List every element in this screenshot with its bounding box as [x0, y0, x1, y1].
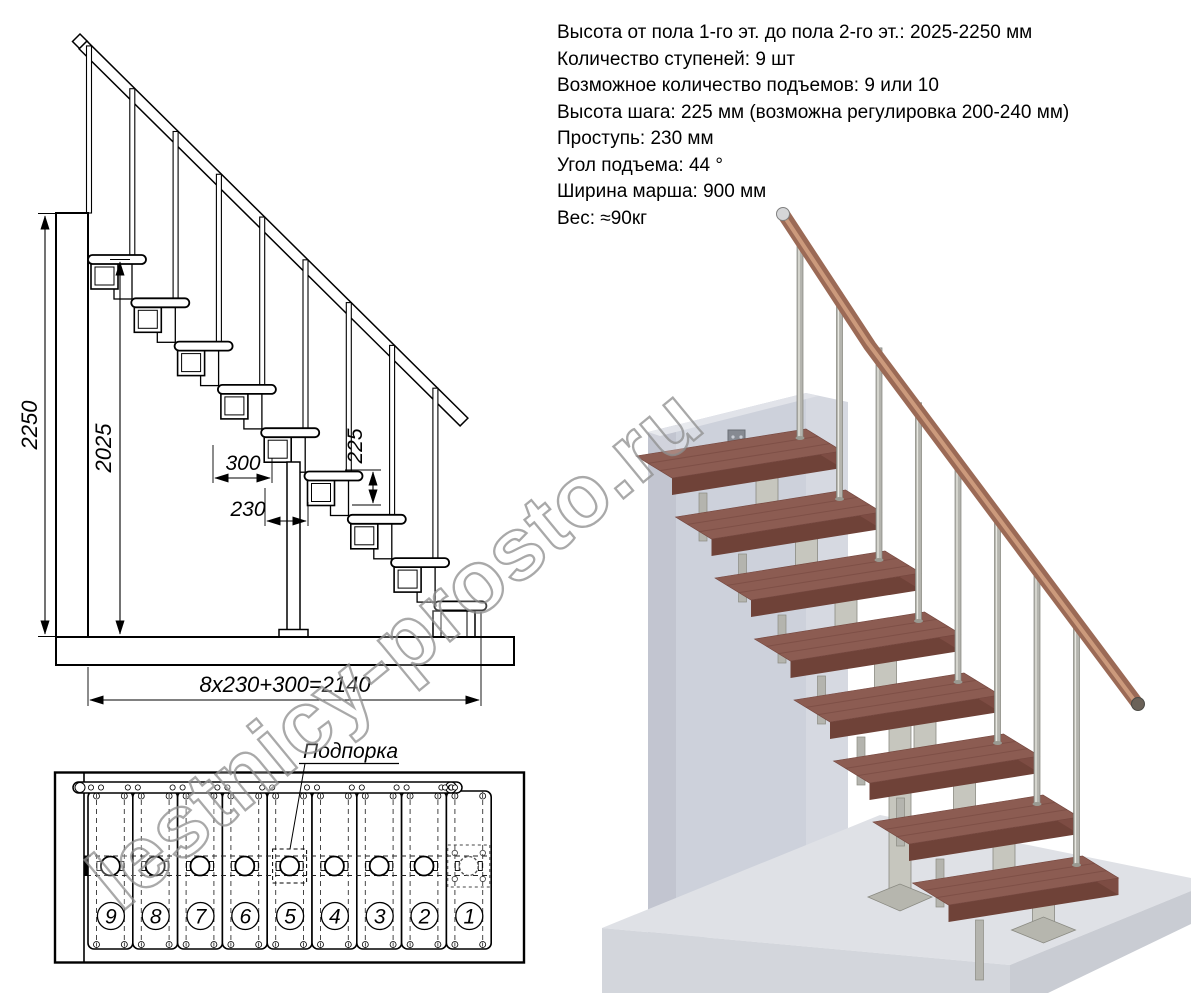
elevation-tread	[261, 428, 319, 437]
elevation-tread	[131, 298, 189, 307]
plan-rail-screw-icon	[270, 785, 275, 790]
plan-rail-screw-icon	[314, 785, 319, 790]
plan-column-circle	[459, 857, 478, 876]
elevation-baluster	[130, 89, 135, 255]
spec-line: Количество ступеней: 9 шт	[557, 47, 1177, 74]
plan-column-circle	[101, 857, 120, 876]
baluster-collar	[1072, 863, 1081, 867]
elevation-tread	[391, 558, 449, 567]
baluster-collar	[1033, 802, 1042, 806]
plan-rail-screw-icon	[225, 785, 230, 790]
plan-rail-screw-icon	[88, 785, 93, 790]
support-label: Подпорка	[303, 740, 398, 763]
handrail-end-cap	[1132, 698, 1145, 711]
spec-line: Ширина марша: 900 мм	[557, 179, 1177, 206]
plan-step-number: 3	[374, 906, 386, 929]
plan-rail-screw-icon	[170, 785, 175, 790]
baluster-collar	[914, 619, 923, 623]
elevation-baluster	[303, 260, 308, 428]
elevation-baluster	[87, 46, 92, 213]
plan-column-circle	[280, 857, 299, 876]
elevation-drawing: 2250 2025 300 230 225 8x230+300=2140	[17, 34, 514, 706]
elevation-baluster	[260, 217, 265, 385]
plan-rail-screw-icon	[349, 785, 354, 790]
dim-total-run: 8x230+300=2140	[199, 672, 371, 697]
plan-step-number: 7	[195, 906, 208, 929]
plan-rail-screw-icon	[260, 785, 265, 790]
baluster-collar	[875, 558, 884, 562]
plan-step-number: 9	[105, 906, 117, 929]
plan-rail-screw-icon	[394, 785, 399, 790]
spec-line: Проступь: 230 мм	[557, 126, 1177, 153]
plan-column-circle	[415, 857, 434, 876]
plan-connector-lug	[455, 862, 459, 871]
spec-line: Угол подъема: 44 °	[557, 153, 1177, 180]
plan-rail-screw-icon	[304, 785, 309, 790]
elevation-baluster	[216, 174, 221, 341]
plan-rail-screw-icon	[125, 785, 130, 790]
elevation-tread	[434, 601, 486, 610]
wall-shading	[648, 425, 676, 946]
dim-overlap: 300	[225, 452, 260, 475]
plan-view: 987654321 Подпорка	[55, 740, 524, 963]
elevation-wall	[56, 213, 88, 637]
plan-rail-screw-icon	[98, 785, 103, 790]
spec-block: Высота от пола 1-го эт. до пола 2-го эт.…	[557, 20, 1177, 232]
elevation-baluster	[433, 388, 438, 558]
elevation-handrail	[79, 41, 468, 426]
plan-step-number: 1	[463, 906, 475, 929]
elevation-floor	[56, 637, 514, 665]
baluster-3d	[797, 238, 803, 438]
plan-rail-screw-icon	[215, 785, 220, 790]
baluster-collar	[835, 497, 844, 501]
plan-rail-screw-icon	[452, 785, 457, 790]
dim-riser: 225	[344, 428, 367, 464]
plan-rail-screw-icon	[359, 785, 364, 790]
plan-column-circle	[146, 857, 165, 876]
spec-line: Высота от пола 1-го эт. до пола 2-го эт.…	[557, 20, 1177, 47]
elevation-support-column	[287, 462, 300, 632]
baluster-collar	[954, 680, 963, 684]
plan-column-circle	[370, 857, 389, 876]
baluster-3d	[837, 293, 843, 499]
plan-wall-anchor	[84, 856, 89, 877]
elevation-baluster	[173, 131, 178, 298]
baluster-collar	[993, 741, 1002, 745]
dim-clear-height: 2025	[91, 423, 116, 474]
plan-step-number: 6	[239, 906, 251, 929]
plan-step-number: 8	[150, 906, 162, 929]
tread-post-3d	[976, 920, 984, 980]
baluster-3d	[916, 403, 922, 621]
plan-step-number: 5	[284, 906, 296, 929]
baluster-collar	[796, 436, 805, 440]
plan-step-number: 4	[329, 906, 341, 929]
elevation-last-step-support	[433, 611, 475, 637]
baluster-3d	[1034, 567, 1040, 804]
plan-rail-screw-icon	[180, 785, 185, 790]
technical-drawings: 2250 2025 300 230 225 8x230+300=2140 987…	[0, 0, 545, 993]
plan-column-circle	[191, 857, 210, 876]
elevation-tread	[348, 515, 406, 524]
plan-column-circle	[325, 857, 344, 876]
elevation-tread	[175, 342, 233, 351]
baluster-3d	[955, 458, 961, 682]
baluster-3d	[876, 348, 882, 560]
plan-rail-screw-icon	[442, 785, 447, 790]
dim-total-height: 2250	[17, 400, 42, 451]
elevation-tread	[218, 385, 276, 394]
plan-rail-screw-icon	[404, 785, 409, 790]
plan-rail-screw-icon	[135, 785, 140, 790]
elevation-baluster	[390, 345, 395, 514]
dim-run: 230	[229, 498, 265, 521]
baluster-3d	[995, 512, 1001, 743]
elevation-tread	[305, 472, 363, 481]
spec-line: Возможное количество подъемов: 9 или 10	[557, 73, 1177, 100]
spec-line: Вес: ≈90кг	[557, 206, 1177, 233]
spec-line: Высота шага: 225 мм (возможна регулировк…	[557, 100, 1177, 127]
staircase-3d	[602, 208, 1191, 993]
plan-step-number: 2	[418, 906, 431, 929]
plan-column-circle	[235, 857, 254, 876]
baluster-3d	[1074, 622, 1080, 865]
